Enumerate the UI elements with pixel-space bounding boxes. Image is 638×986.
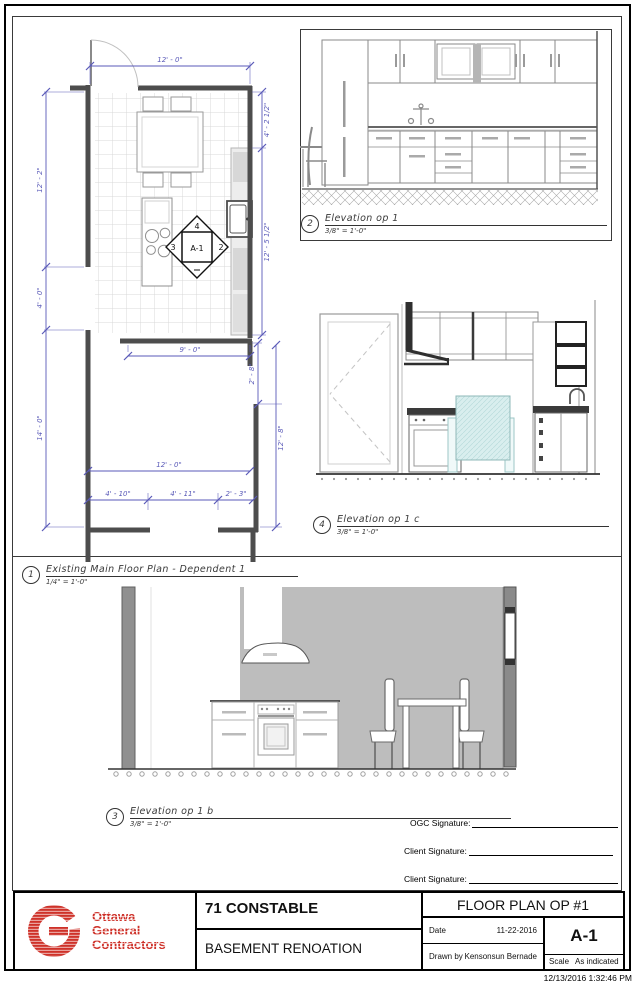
dim-right-lower: 12' - 8" (277, 425, 285, 450)
sheet-info-cell: FLOOR PLAN OP #1 Date 11-22-2016 Drawn b… (423, 893, 623, 969)
view-number-bubble: 2 (301, 215, 319, 233)
logo-g-icon (25, 900, 83, 962)
marker-right-number: 2 (218, 243, 223, 252)
elevation-1b-drawing (98, 585, 518, 810)
dim-top-width: 12' - 0" (157, 56, 182, 64)
ogc-signature-label: OGC Signature: (410, 818, 470, 828)
view-title: Elevation op 1 (325, 213, 607, 226)
dim-inner-opening: 9' - 0" (179, 346, 200, 354)
marker-top-number: 4 (194, 222, 199, 231)
scale-label: Scale (549, 957, 569, 966)
ground-line-1b (108, 769, 516, 776)
scale-value: As indicated (575, 957, 619, 966)
sheet-number: A-1 (545, 918, 623, 954)
drawn-by-value: Kensonsun Bernade (465, 952, 538, 961)
wall-edge-left (122, 587, 135, 769)
view-scale: 3/8" = 1'-0" (325, 226, 607, 235)
date-row: Date 11-22-2016 (423, 918, 543, 943)
view-label-elevation-1c: 4 Elevation op 1 c 3/8" = 1'-0" (313, 514, 609, 536)
oven-cabinet-run (210, 701, 340, 768)
client-signature-label: Client Signature: (404, 846, 467, 856)
date-label: Date (429, 926, 446, 935)
view-number-bubble: 4 (313, 516, 331, 534)
door (320, 314, 398, 472)
signature-row-client2: Client Signature: (404, 874, 618, 884)
faucet (409, 104, 434, 125)
countertop (368, 127, 597, 130)
company-logo: Ottawa General Contractors (15, 893, 195, 969)
title-block: Ottawa General Contractors 71 CONSTABLE … (13, 891, 625, 971)
logo-wordmark: Ottawa General Contractors (92, 910, 166, 953)
cooktop-plan (142, 198, 172, 286)
floor-plan-drawing: 4 3 2 A-1 (0, 0, 300, 565)
tall-cabinet (322, 40, 368, 185)
date-value: 11-22-2016 (497, 926, 537, 935)
client-signature-line (469, 846, 613, 856)
dim-left-upper: 12' - 2" (36, 167, 44, 192)
signature-row-client1: Client Signature: (404, 846, 613, 856)
dim-lower-width: 12' - 0" (156, 461, 181, 469)
view-number-bubble: 1 (22, 566, 40, 584)
drawn-by-row: Drawn by Kensonsun Bernade (423, 943, 543, 969)
dim-left-opening: 4' - 0" (36, 287, 44, 308)
elevation-1c-drawing (308, 298, 628, 516)
view-scale: 1/4" = 1'-0" (46, 577, 298, 586)
drawn-by-label: Drawn by (429, 952, 463, 961)
view-title: Existing Main Floor Plan - Dependent 1 (46, 564, 298, 577)
dim-right-jog: 2' - 8" (248, 363, 256, 384)
logo-line-1: Ottawa (92, 910, 166, 924)
marker-left-number: 3 (170, 243, 175, 252)
client-signature-label: Client Signature: (404, 874, 467, 884)
dim-left-lower: 14' - 0" (36, 415, 44, 440)
view-label-floor-plan: 1 Existing Main Floor Plan - Dependent 1… (22, 564, 298, 586)
view-number-bubble: 3 (106, 808, 124, 826)
upper-cabinets (368, 40, 597, 83)
dim-bottom-b: 4' - 11" (170, 490, 195, 498)
project-subtitle: BASEMENT RENOATION (197, 930, 421, 969)
logo-line-2: General (92, 924, 166, 938)
door-swing (91, 40, 138, 87)
project-cell: 71 CONSTABLE BASEMENT RENOATION (195, 893, 423, 969)
base-cabinets (368, 131, 597, 183)
counter-run (231, 148, 250, 335)
dim-bottom-a: 4' - 10" (105, 490, 130, 498)
ogc-signature-line (472, 818, 618, 828)
upper-cabinets-1c (406, 312, 538, 360)
marker-sheet-number: A-1 (190, 244, 203, 253)
view-scale: 3/8" = 1'-0" (337, 527, 609, 536)
logo-line-3: Contractors (92, 938, 166, 952)
drawing-sheet: 4 3 2 A-1 (0, 0, 638, 986)
scale-row: Scale As indicated (545, 954, 623, 969)
wall-edge-right (504, 587, 516, 767)
dim-right-mid: 12' - 5 1/2" (263, 223, 271, 262)
project-name: 71 CONSTABLE (197, 893, 421, 930)
elevation-1-drawing (300, 29, 612, 212)
client-signature-line (469, 874, 618, 884)
dim-right-upper: 4' - 2 1/2" (263, 103, 271, 138)
print-timestamp: 12/13/2016 1:32:46 PM (544, 973, 632, 983)
sheet-title: FLOOR PLAN OP #1 (423, 893, 623, 918)
ground-line-1c (316, 474, 600, 480)
signature-row-ogc: OGC Signature: (410, 818, 618, 828)
view-label-elevation-1: 2 Elevation op 1 3/8" = 1'-0" (301, 213, 607, 235)
dim-bottom-c: 2' - 3" (225, 490, 246, 498)
view-title: Elevation op 1 c (337, 514, 609, 527)
